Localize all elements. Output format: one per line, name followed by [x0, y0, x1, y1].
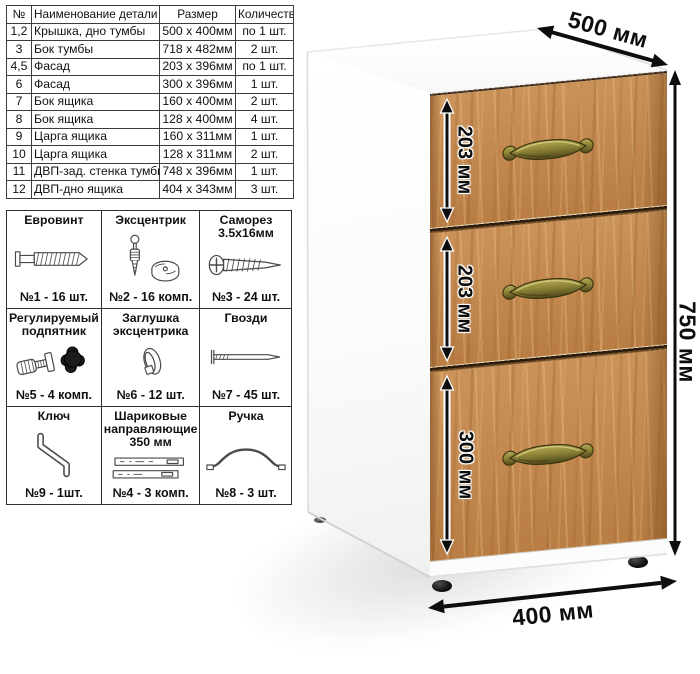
cell-size: 500 х 400мм	[160, 23, 236, 41]
hardware-title: Заглушка эксцентрика	[104, 312, 198, 338]
table-row: 7 Бок ящика 160 х 400мм 2 шт.	[7, 93, 294, 111]
table-row: 8 Бок ящика 128 х 400мм 4 шт.	[7, 111, 294, 129]
header-name: Наименование детали	[32, 6, 160, 24]
hardware-title: Шариковые направляющие 350 мм	[104, 410, 198, 449]
eccentric-cam-icon	[104, 227, 198, 290]
cell-name: Фасад	[32, 76, 160, 94]
cell-size: 160 х 311мм	[160, 128, 236, 146]
hardware-count: №8 - 3 шт.	[215, 486, 276, 500]
cell-name: Царга ящика	[32, 128, 160, 146]
drawer-middle-dimension-label: 203 мм	[453, 265, 476, 334]
drawer-top-dimension-label: 203 мм	[453, 126, 476, 195]
cell-num: 12	[7, 181, 32, 199]
cell-qty: 3 шт.	[236, 181, 294, 199]
hardware-cell-cam-cap: Заглушка эксцентрика №6 - 12 шт.	[101, 309, 200, 407]
cell-size: 128 х 400мм	[160, 111, 236, 129]
hardware-title: Гвозди	[225, 312, 268, 325]
cell-size: 300 х 396мм	[160, 76, 236, 94]
height-dimension-label: 750 мм	[674, 301, 700, 383]
cell-qty: 2 шт.	[236, 146, 294, 164]
table-row: 11 ДВП-зад. стенка тумбы 748 х 396мм 1 ш…	[7, 163, 294, 181]
hardware-cell-nails: Гвозди №7 - 45 шт.	[200, 309, 292, 407]
drawer-bottom-dimension-label: 300 мм	[454, 431, 477, 500]
cell-qty: 4 шт.	[236, 111, 294, 129]
parts-header-row: № Наименование детали Размер Количество	[7, 6, 294, 24]
cell-qty: по 1 шт.	[236, 23, 294, 41]
hardware-row: Регулируемый подпятник №5 - 4 комп. Загл…	[7, 309, 292, 407]
cell-name: Бок ящика	[32, 111, 160, 129]
cam-cap-icon	[104, 338, 198, 388]
cell-qty: по 1 шт.	[236, 58, 294, 76]
hardware-cell-key: Ключ №9 - 1шт.	[7, 407, 102, 505]
cell-qty: 2 шт.	[236, 41, 294, 59]
hardware-title: Евровинт	[24, 214, 83, 227]
handle-icon	[202, 423, 289, 486]
hardware-count: №2 - 16 комп.	[109, 290, 192, 304]
nail-icon	[202, 325, 289, 388]
ball-slides-icon	[104, 449, 198, 486]
cell-num: 9	[7, 128, 32, 146]
cell-name: Бок ящика	[32, 93, 160, 111]
hardware-cell-adjustable-foot: Регулируемый подпятник №5 - 4 комп.	[7, 309, 102, 407]
hardware-cell-handle: Ручка №8 - 3 шт.	[200, 407, 292, 505]
cell-qty: 2 шт.	[236, 93, 294, 111]
hardware-table: Евровинт №1 - 16 шт. Эксцентрик	[6, 210, 292, 505]
table-row: 10 Царга ящика 128 х 311мм 2 шт.	[7, 146, 294, 164]
cell-num: 6	[7, 76, 32, 94]
cabinet-foot	[314, 517, 326, 523]
cell-size: 203 х 396мм	[160, 58, 236, 76]
cabinet-foot	[432, 580, 452, 592]
table-row: 1,2 Крышка, дно тумбы 500 х 400мм по 1 ш…	[7, 23, 294, 41]
cell-num: 8	[7, 111, 32, 129]
header-qty: Количество	[236, 6, 294, 24]
hardware-row: Ключ №9 - 1шт. Шариковые направляющие 35…	[7, 407, 292, 505]
cell-num: 10	[7, 146, 32, 164]
cell-size: 160 х 400мм	[160, 93, 236, 111]
table-row: 9 Царга ящика 160 х 311мм 1 шт.	[7, 128, 294, 146]
adjustable-foot-icon	[9, 338, 99, 388]
hardware-cell-self-tapping-screw: Саморез 3.5х16мм №3 - 24 шт.	[200, 211, 292, 309]
cell-qty: 1 шт.	[236, 128, 294, 146]
euro-screw-icon	[9, 227, 99, 290]
cell-num: 3	[7, 41, 32, 59]
cell-name: ДВП-дно ящика	[32, 181, 160, 199]
drawer-handle	[498, 270, 598, 306]
cell-name: Фасад	[32, 58, 160, 76]
hardware-count: №6 - 12 шт.	[116, 388, 184, 402]
hex-key-icon	[9, 423, 99, 486]
cell-qty: 1 шт.	[236, 163, 294, 181]
table-row: 12 ДВП-дно ящика 404 х 343мм 3 шт.	[7, 181, 294, 199]
hardware-count: №5 - 4 комп.	[16, 388, 92, 402]
cabinet-foot	[628, 556, 648, 568]
table-row: 6 Фасад 300 х 396мм 1 шт.	[7, 76, 294, 94]
hardware-cell-ball-slides: Шариковые направляющие 350 мм №4 - 3 ком…	[101, 407, 200, 505]
cell-num: 7	[7, 93, 32, 111]
cell-name: Царга ящика	[32, 146, 160, 164]
cell-num: 11	[7, 163, 32, 181]
header-num: №	[7, 6, 32, 24]
cell-num: 4,5	[7, 58, 32, 76]
parts-list-table: № Наименование детали Размер Количество …	[6, 5, 294, 199]
cell-name: Бок тумбы	[32, 41, 160, 59]
hardware-count: №3 - 24 шт.	[212, 290, 280, 304]
table-row: 3 Бок тумбы 718 х 482мм 2 шт.	[7, 41, 294, 59]
cell-size: 128 х 311мм	[160, 146, 236, 164]
hardware-count: №1 - 16 шт.	[20, 290, 88, 304]
hardware-title: Саморез 3.5х16мм	[202, 214, 289, 240]
drawer-handle	[498, 132, 598, 168]
cell-size: 404 х 343мм	[160, 181, 236, 199]
assembly-sheet: { "parts_table": { "headers": ["№", "Наи…	[0, 0, 700, 648]
hardware-title: Регулируемый подпятник	[9, 312, 99, 338]
cabinet-side-panel	[307, 52, 430, 577]
hardware-count: №9 - 1шт.	[25, 486, 83, 500]
self-tapping-screw-icon	[202, 240, 289, 290]
hardware-title: Ручка	[228, 410, 263, 423]
cell-name: Крышка, дно тумбы	[32, 23, 160, 41]
cell-size: 718 х 482мм	[160, 41, 236, 59]
cell-num: 1,2	[7, 23, 32, 41]
header-size: Размер	[160, 6, 236, 24]
table-row: 4,5 Фасад 203 х 396мм по 1 шт.	[7, 58, 294, 76]
cell-name: ДВП-зад. стенка тумбы	[32, 163, 160, 181]
hardware-row: Евровинт №1 - 16 шт. Эксцентрик	[7, 211, 292, 309]
hardware-cell-eccentric: Эксцентрик №2 - 16 комп.	[101, 211, 200, 309]
cell-qty: 1 шт.	[236, 76, 294, 94]
hardware-title: Эксцентрик	[115, 214, 186, 227]
cell-size: 748 х 396мм	[160, 163, 236, 181]
hardware-cell-euro-screw: Евровинт №1 - 16 шт.	[7, 211, 102, 309]
hardware-title: Ключ	[38, 410, 71, 423]
hardware-count: №4 - 3 комп.	[112, 486, 188, 500]
hardware-count: №7 - 45 шт.	[212, 388, 280, 402]
drawer-handle	[498, 437, 598, 473]
